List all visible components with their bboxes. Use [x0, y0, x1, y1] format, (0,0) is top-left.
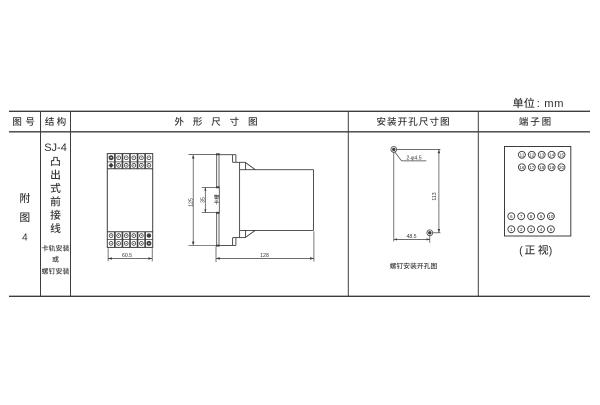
svg-text:11: 11 [519, 153, 524, 158]
svg-text:18: 18 [539, 165, 545, 170]
svg-text:20: 20 [559, 165, 565, 170]
svg-text:10: 10 [548, 214, 554, 219]
svg-text:113: 113 [432, 192, 438, 200]
svg-text:16: 16 [519, 165, 525, 170]
svg-text:2-φ4.5: 2-φ4.5 [406, 155, 421, 161]
svg-text:15: 15 [559, 153, 565, 158]
svg-text:60.5: 60.5 [122, 253, 132, 259]
svg-text:48.5: 48.5 [406, 234, 416, 240]
svg-text:14: 14 [549, 153, 555, 158]
svg-text:SJ-4: SJ-4 [44, 142, 67, 154]
svg-text:35: 35 [201, 197, 207, 203]
svg-text:13: 13 [539, 153, 545, 158]
svg-text:8: 8 [530, 214, 533, 219]
svg-text:125: 125 [188, 198, 194, 207]
svg-text:4: 4 [540, 227, 543, 232]
svg-text:: mm: : mm [537, 98, 564, 110]
svg-text:4: 4 [22, 232, 28, 243]
svg-text:7: 7 [520, 214, 523, 219]
svg-text:5: 5 [550, 227, 553, 232]
svg-text:9: 9 [540, 214, 543, 219]
svg-text:): ) [549, 245, 553, 257]
svg-text:6: 6 [510, 214, 513, 219]
svg-text:2: 2 [520, 227, 523, 232]
svg-text:(: ( [519, 245, 523, 257]
svg-text:19: 19 [549, 165, 555, 170]
svg-text:3: 3 [530, 227, 533, 232]
svg-text:17: 17 [529, 165, 535, 170]
svg-text:1: 1 [510, 227, 513, 232]
svg-text:12: 12 [529, 153, 535, 158]
svg-text:128: 128 [260, 253, 269, 259]
